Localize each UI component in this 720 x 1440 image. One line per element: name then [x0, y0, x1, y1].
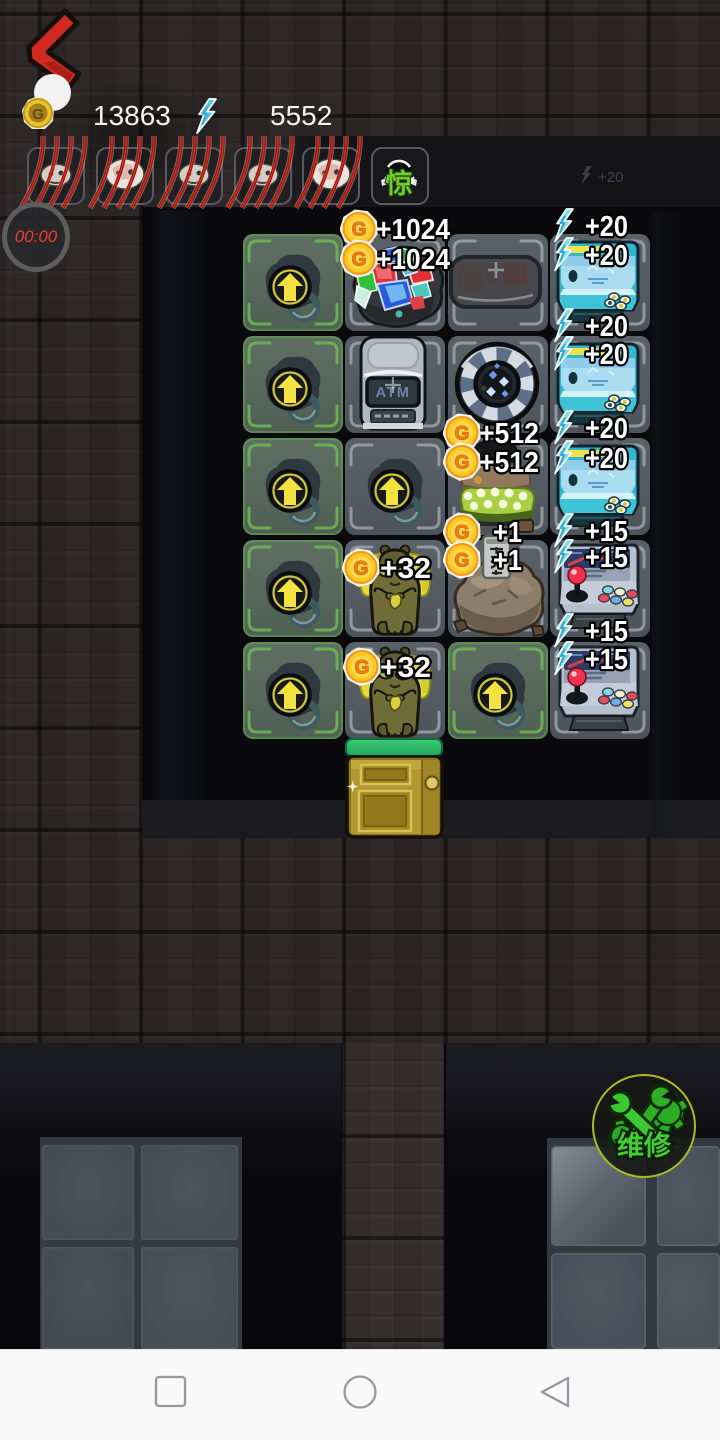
svg-text:+15: +15 — [585, 542, 628, 574]
svg-text:G: G — [455, 453, 470, 474]
svg-text:G: G — [354, 559, 369, 580]
svg-text:+1024: +1024 — [376, 244, 450, 276]
svg-text:G: G — [32, 106, 44, 123]
svg-text:+32: +32 — [380, 553, 431, 585]
svg-text:+20: +20 — [585, 339, 628, 371]
svg-text:+1: +1 — [493, 545, 522, 577]
svg-text:G: G — [355, 658, 370, 679]
svg-text:+32: +32 — [380, 652, 431, 684]
svg-text:+512: +512 — [479, 447, 539, 479]
svg-text:维修: 维修 — [617, 1131, 672, 1161]
svg-text:G: G — [352, 250, 367, 271]
svg-text:+15: +15 — [585, 644, 628, 676]
svg-text:+20: +20 — [598, 169, 623, 186]
svg-text:+20: +20 — [585, 240, 628, 272]
svg-text:惊: 惊 — [386, 169, 413, 199]
svg-text:+20: +20 — [585, 443, 628, 475]
